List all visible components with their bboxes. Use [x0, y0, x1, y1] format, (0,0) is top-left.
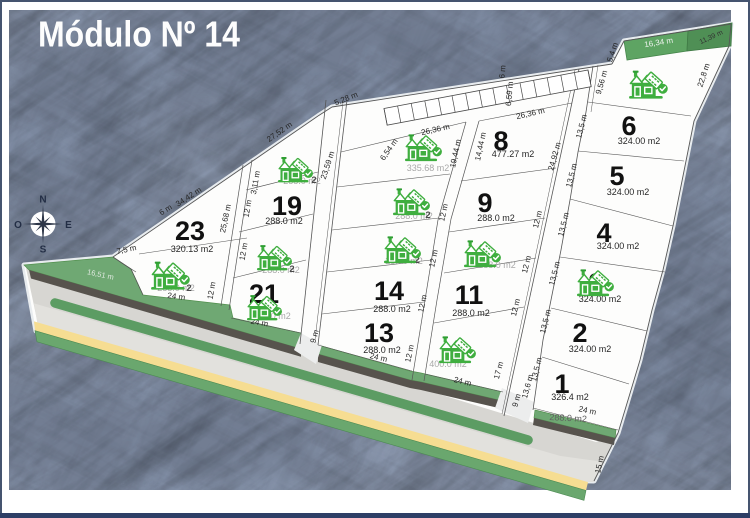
- svg-text:E: E: [65, 220, 72, 231]
- svg-text:324.00 m2: 324.00 m2: [618, 136, 661, 146]
- svg-text:288.0 m2: 288.0 m2: [265, 216, 303, 226]
- svg-text:23: 23: [175, 216, 205, 246]
- svg-text:Módulo Nº 14: Módulo Nº 14: [38, 14, 241, 55]
- svg-text:11: 11: [455, 280, 484, 310]
- svg-text:O: O: [14, 220, 22, 231]
- svg-text:320.13 m2: 320.13 m2: [171, 244, 214, 254]
- svg-text:288.0 m2: 288.0 m2: [477, 213, 515, 223]
- svg-text:477.27 m2: 477.27 m2: [492, 149, 535, 159]
- svg-text:326.4 m2: 326.4 m2: [551, 392, 589, 402]
- svg-text:324.00 m2: 324.00 m2: [607, 187, 650, 197]
- svg-text:2: 2: [186, 283, 191, 294]
- svg-text:13: 13: [364, 318, 394, 348]
- svg-text:335.68 m2: 335.68 m2: [407, 163, 450, 173]
- svg-text:324.00 m2: 324.00 m2: [569, 344, 612, 354]
- svg-text:288.0 m2: 288.0 m2: [452, 308, 490, 318]
- svg-text:14: 14: [374, 276, 404, 306]
- svg-text:2: 2: [289, 264, 294, 275]
- svg-text:2: 2: [311, 175, 316, 186]
- svg-text:N: N: [39, 195, 46, 206]
- svg-text:288.0 m2: 288.0 m2: [373, 304, 411, 314]
- svg-text:2: 2: [425, 210, 430, 221]
- svg-text:S: S: [40, 245, 47, 256]
- svg-text:324.00 m2: 324.00 m2: [597, 241, 640, 251]
- svg-text:6 m: 6 m: [497, 64, 507, 78]
